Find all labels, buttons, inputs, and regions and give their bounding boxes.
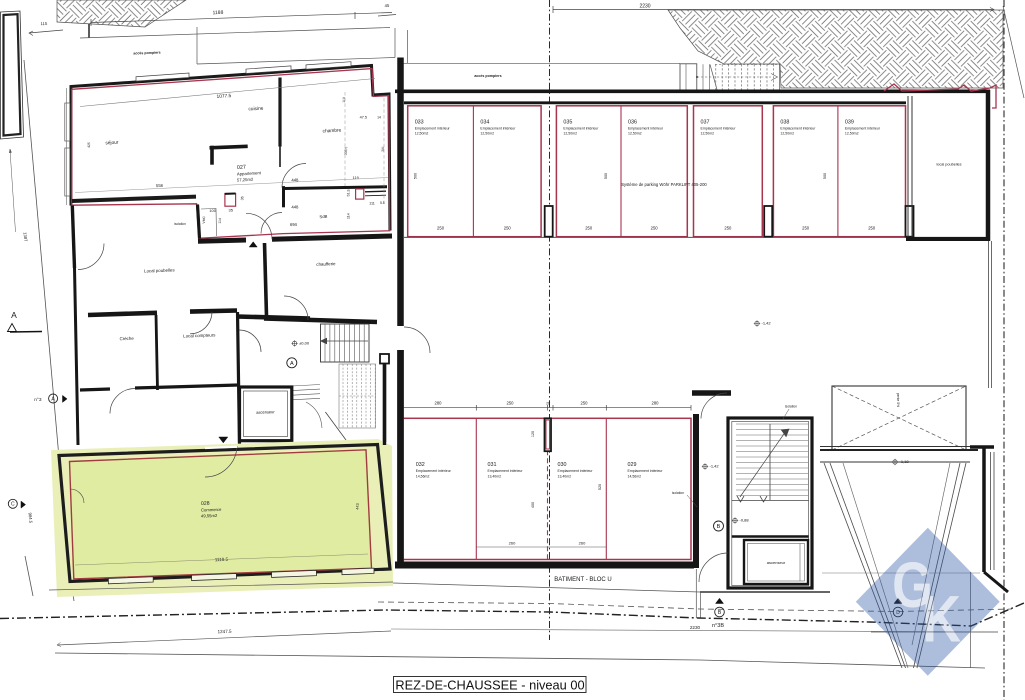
- svg-text:45: 45: [385, 3, 391, 8]
- svg-text:14: 14: [377, 116, 381, 120]
- svg-text:2230: 2230: [690, 625, 701, 630]
- svg-text:-1,42: -1,42: [762, 321, 772, 326]
- svg-text:35: 35: [240, 196, 244, 200]
- svg-text:250: 250: [581, 401, 589, 406]
- svg-text:425: 425: [87, 142, 91, 148]
- svg-text:local poubelles: local poubelles: [936, 163, 961, 167]
- svg-text:500: 500: [414, 173, 418, 179]
- svg-text:032: 032: [416, 462, 425, 468]
- svg-text:12,50m2: 12,50m2: [628, 132, 642, 136]
- svg-text:isolation: isolation: [672, 491, 684, 495]
- svg-text:REZ-DE-CHAUSSEE - niveau 00: REZ-DE-CHAUSSEE - niveau 00: [395, 678, 584, 693]
- svg-text:114: 114: [346, 213, 350, 219]
- svg-text:250: 250: [651, 226, 659, 231]
- svg-text:14,56m2: 14,56m2: [628, 475, 642, 479]
- svg-text:35: 35: [228, 208, 233, 213]
- svg-text:chaufferie: chaufferie: [316, 261, 336, 267]
- svg-text:12,50m2: 12,50m2: [480, 132, 494, 136]
- svg-text:400: 400: [531, 502, 535, 508]
- svg-text:Emplacement intérieur: Emplacement intérieur: [701, 126, 737, 130]
- svg-text:119: 119: [353, 176, 359, 180]
- svg-text:51.5: 51.5: [346, 189, 350, 196]
- svg-text:47.5: 47.5: [360, 116, 367, 120]
- svg-text:Emplacement intérieur: Emplacement intérieur: [780, 126, 816, 130]
- svg-text:12,50m2: 12,50m2: [845, 132, 859, 136]
- svg-text:12,50m2: 12,50m2: [563, 132, 577, 136]
- svg-text:1387: 1387: [23, 232, 29, 242]
- svg-text:036: 036: [628, 120, 637, 126]
- svg-text:BATIMENT - BLOC U: BATIMENT - BLOC U: [554, 577, 611, 583]
- svg-text:031: 031: [488, 462, 497, 468]
- svg-text:035: 035: [563, 120, 572, 126]
- svg-text:250: 250: [585, 226, 593, 231]
- svg-text:12,50m2: 12,50m2: [415, 132, 429, 136]
- svg-text:n°3: n°3: [34, 397, 42, 403]
- svg-text:038: 038: [780, 120, 789, 126]
- svg-text:100: 100: [209, 208, 216, 213]
- svg-text:Emplacement intérieur: Emplacement intérieur: [415, 126, 451, 130]
- svg-text:558: 558: [156, 183, 164, 188]
- svg-text:Emplacement intérieur: Emplacement intérieur: [628, 469, 664, 473]
- svg-text:Emplacement intérieur: Emplacement intérieur: [563, 126, 599, 130]
- svg-text:A: A: [11, 310, 17, 320]
- svg-text:250: 250: [437, 226, 445, 231]
- svg-text:443: 443: [356, 503, 360, 509]
- svg-text:SdB: SdB: [319, 214, 327, 219]
- svg-text:030: 030: [558, 462, 567, 468]
- svg-text:Emplacement intérieur: Emplacement intérieur: [628, 126, 664, 130]
- svg-text:111: 111: [369, 202, 375, 206]
- svg-text:037: 037: [701, 120, 710, 126]
- svg-text:-0,88: -0,88: [740, 518, 750, 523]
- svg-text:13,40m2: 13,40m2: [558, 475, 572, 479]
- svg-text:isolation: isolation: [785, 405, 797, 409]
- svg-text:2230: 2230: [639, 4, 650, 10]
- svg-text:26: 26: [546, 402, 550, 406]
- svg-text:301: 301: [381, 146, 385, 152]
- svg-text:033: 033: [415, 120, 424, 126]
- svg-text:B: B: [717, 524, 721, 530]
- svg-text:Crèche: Crèche: [119, 336, 134, 342]
- svg-text:034: 034: [480, 120, 489, 126]
- svg-text:039: 039: [845, 120, 854, 126]
- svg-text:120: 120: [531, 431, 535, 437]
- svg-text:500: 500: [604, 173, 608, 179]
- svg-text:K: K: [922, 581, 961, 655]
- svg-text:57,25m2: 57,25m2: [237, 177, 254, 183]
- svg-text:250: 250: [507, 401, 515, 406]
- svg-text:A: A: [290, 361, 294, 367]
- svg-text:1188: 1188: [212, 10, 223, 16]
- svg-text:C: C: [11, 502, 15, 508]
- svg-text:280: 280: [435, 401, 443, 406]
- svg-text:-1,42: -1,42: [710, 464, 720, 469]
- svg-text:pente 5%: pente 5%: [896, 393, 900, 407]
- svg-text:280: 280: [652, 401, 660, 406]
- svg-text:Système de parking Wöhr PARKLI: Système de parking Wöhr PARKLIFT 405-200: [621, 182, 707, 187]
- svg-text:Emplacement intérieur: Emplacement intérieur: [558, 469, 594, 473]
- svg-text:250: 250: [868, 226, 876, 231]
- svg-text:027: 027: [237, 165, 246, 171]
- svg-text:VMC: VMC: [202, 215, 206, 223]
- svg-text:303.5: 303.5: [344, 146, 348, 155]
- svg-text:chambre: chambre: [322, 127, 341, 134]
- svg-text:séjour: séjour: [105, 140, 119, 147]
- svg-text:cuisine: cuisine: [248, 106, 264, 113]
- svg-text:115: 115: [40, 21, 48, 26]
- svg-text:14,56m2: 14,56m2: [416, 475, 430, 479]
- svg-text:±0,00: ±0,00: [299, 341, 310, 346]
- svg-text:250: 250: [802, 226, 810, 231]
- svg-text:13,40m2: 13,40m2: [488, 475, 502, 479]
- svg-text:500: 500: [823, 173, 827, 179]
- svg-text:accès pompiers: accès pompiers: [474, 74, 501, 78]
- svg-text:Commerce: Commerce: [201, 507, 222, 513]
- svg-text:250: 250: [724, 226, 732, 231]
- svg-text:Emplacement intérieur: Emplacement intérieur: [845, 126, 881, 130]
- svg-text:028: 028: [201, 501, 210, 507]
- svg-text:260: 260: [509, 541, 516, 546]
- svg-text:Emplacement intérieur: Emplacement intérieur: [488, 469, 524, 473]
- svg-text:49,55m2: 49,55m2: [201, 513, 218, 519]
- svg-text:-1,18: -1,18: [900, 459, 910, 464]
- svg-text:Emplacement intérieur: Emplacement intérieur: [416, 469, 452, 473]
- svg-text:n°3B: n°3B: [712, 623, 724, 629]
- svg-text:250: 250: [504, 226, 512, 231]
- svg-text:114: 114: [218, 218, 222, 224]
- svg-text:isolation: isolation: [174, 222, 186, 226]
- svg-text:110: 110: [342, 97, 346, 103]
- svg-text:029: 029: [628, 462, 637, 468]
- svg-text:Emplacement intérieur: Emplacement intérieur: [480, 126, 516, 130]
- svg-text:12,50m2: 12,50m2: [780, 132, 794, 136]
- svg-text:448: 448: [291, 204, 299, 209]
- svg-text:ascenseur: ascenseur: [256, 409, 275, 415]
- svg-text:1247.5: 1247.5: [217, 629, 232, 635]
- svg-text:12,50m2: 12,50m2: [701, 132, 715, 136]
- svg-text:ascenseur: ascenseur: [767, 560, 786, 565]
- svg-text:694: 694: [290, 222, 298, 227]
- svg-text:1077.5: 1077.5: [216, 93, 231, 100]
- svg-text:260: 260: [579, 541, 586, 546]
- svg-text:520: 520: [598, 484, 602, 490]
